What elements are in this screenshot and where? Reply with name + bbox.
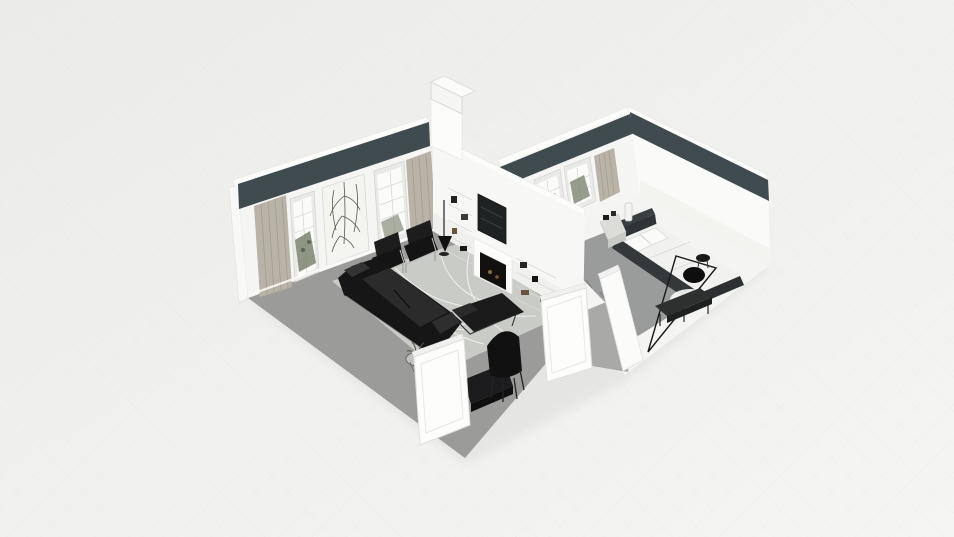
shelf-item — [520, 262, 527, 268]
decor-item — [611, 211, 616, 216]
plant-leaf — [301, 248, 305, 252]
3d-viewport[interactable] — [0, 0, 954, 537]
ember — [488, 270, 492, 274]
decor-item — [603, 215, 609, 220]
shelf-item — [451, 196, 457, 203]
vase — [625, 203, 632, 221]
shelf-item — [460, 246, 467, 251]
lamp-base — [439, 252, 449, 256]
french-window-1 — [290, 191, 319, 282]
shelf-item — [521, 290, 529, 295]
ember — [495, 275, 499, 279]
scene-canvas — [0, 0, 954, 537]
plant-leaf — [307, 240, 311, 244]
shelf-item — [452, 228, 457, 234]
lamp-shade — [683, 267, 705, 283]
shelf-item — [532, 276, 538, 282]
door-east — [540, 283, 592, 382]
botanical-art-panel — [322, 174, 369, 266]
shelf-item — [461, 214, 468, 220]
door-south — [412, 334, 470, 445]
